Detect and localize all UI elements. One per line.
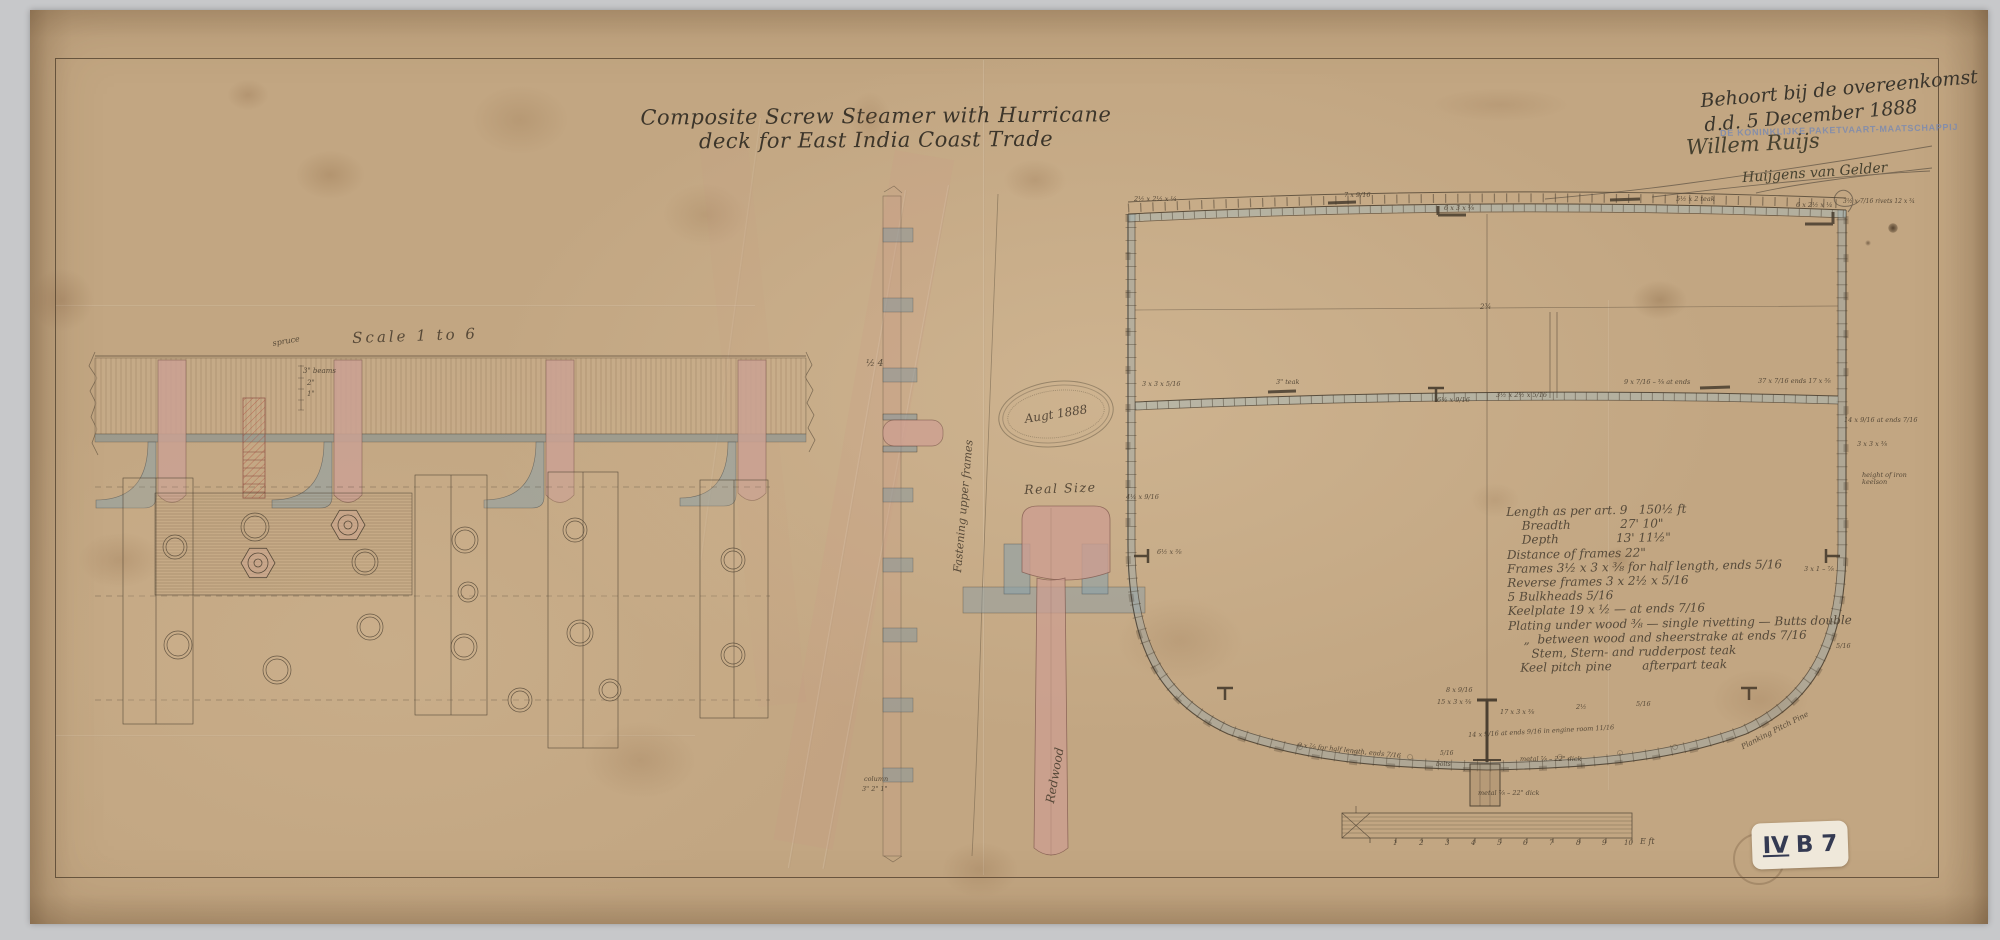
deck-plan-panels xyxy=(95,472,770,748)
scanned-ship-drawing: Composite Screw Steamer with Hurricane d… xyxy=(0,0,2000,940)
frame-fastening-strip xyxy=(883,186,998,862)
hull-midship-section xyxy=(1128,192,1846,806)
archive-label-sticker: IV B 7 xyxy=(1751,820,1849,869)
scale-bar xyxy=(1342,806,1632,843)
drawing-title: Composite Screw Steamer with Hurricane d… xyxy=(628,102,1124,153)
real-size-beam-detail xyxy=(963,506,1145,856)
specification-list: Length as per art. 9 150½ ft Breadth 27'… xyxy=(1506,499,1853,675)
archive-label-rest: B 7 xyxy=(1795,831,1837,858)
archive-label-roman: IV xyxy=(1762,832,1789,859)
